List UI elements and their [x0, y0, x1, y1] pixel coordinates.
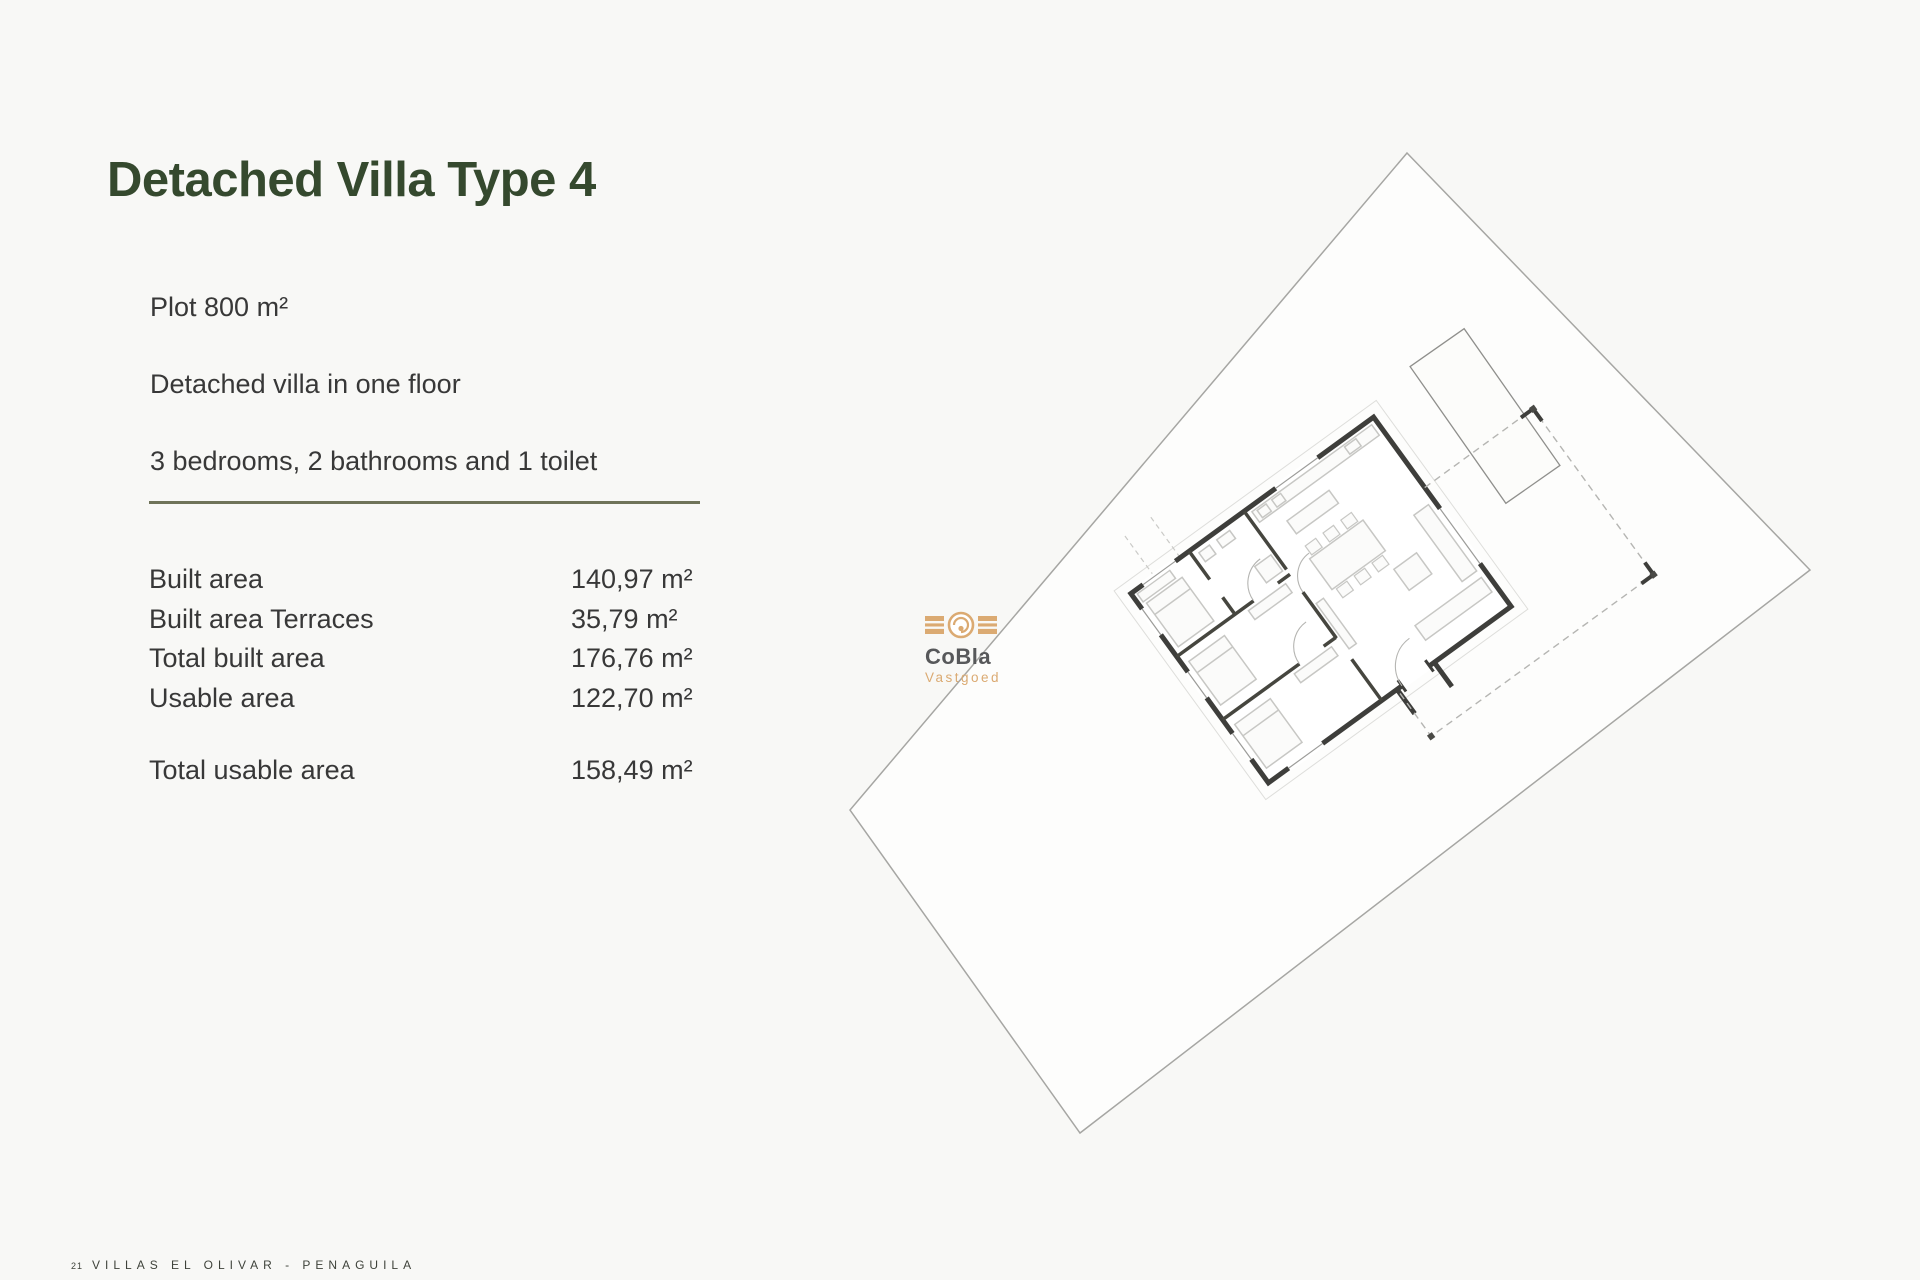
cobla-logo-icon	[925, 611, 997, 639]
spec-value: 35,79 m²	[571, 606, 678, 646]
spec-row: Total built area 176,76 m²	[149, 645, 749, 685]
spec-value: 176,76 m²	[571, 645, 693, 685]
spec-row: Built area 140,97 m²	[149, 566, 749, 606]
spec-label: Total usable area	[149, 757, 571, 797]
page-footer: 21 VILLAS EL OLIVAR - PENAGUILA	[71, 1258, 416, 1272]
watermark-subtitle: Vastgoed	[925, 671, 1105, 685]
plot-size-line: Plot 800 m²	[150, 294, 597, 321]
project-name: VILLAS EL OLIVAR - PENAGUILA	[92, 1258, 416, 1272]
spec-total-row: Total usable area 158,49 m²	[149, 757, 749, 797]
intro-text: Plot 800 m² Detached villa in one floor …	[150, 294, 597, 525]
area-spec-table: Built area 140,97 m² Built area Terraces…	[149, 566, 749, 797]
page-number: 21	[71, 1261, 83, 1271]
spec-value: 122,70 m²	[571, 685, 693, 725]
rooms-line: 3 bedrooms, 2 bathrooms and 1 toilet	[150, 448, 597, 475]
spec-row: Built area Terraces 35,79 m²	[149, 606, 749, 646]
spec-label: Usable area	[149, 685, 571, 725]
divider-rule	[149, 501, 700, 504]
spec-row: Usable area 122,70 m²	[149, 685, 749, 725]
spec-label: Total built area	[149, 645, 571, 685]
watermark-brand: CoBla	[925, 646, 1105, 668]
watermark: CoBla Vastgoed	[925, 611, 1105, 685]
page-title: Detached Villa Type 4	[107, 152, 596, 208]
spec-value: 158,49 m²	[571, 757, 693, 797]
floors-line: Detached villa in one floor	[150, 371, 597, 398]
spec-label: Built area Terraces	[149, 606, 571, 646]
spec-label: Built area	[149, 566, 571, 606]
spec-value: 140,97 m²	[571, 566, 693, 606]
